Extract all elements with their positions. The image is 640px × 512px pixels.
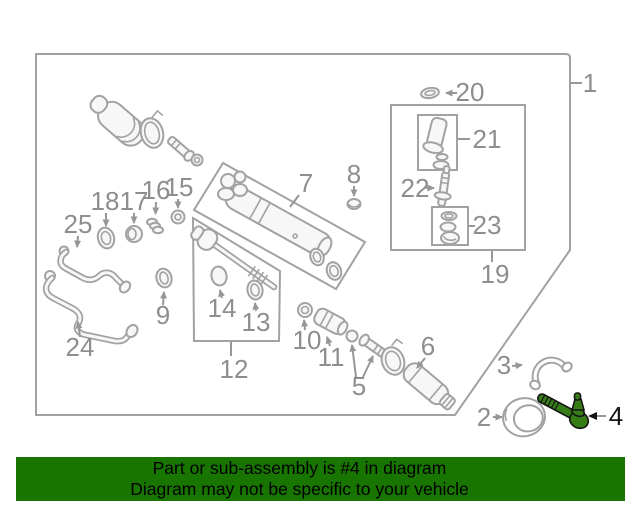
part-14	[210, 265, 229, 287]
callout-21[interactable]: 21	[458, 124, 501, 154]
callout-23-label[interactable]: 23	[473, 210, 502, 240]
callout-3[interactable]: 3	[497, 350, 574, 391]
part-8	[348, 199, 361, 209]
part-22-valve	[433, 165, 454, 207]
banner-line-1: Part or sub-assembly is #4 in diagram	[153, 458, 447, 479]
callout-20[interactable]: 20	[420, 77, 484, 107]
callout-25-label[interactable]: 25	[64, 209, 93, 239]
callout-12[interactable]: 12	[220, 342, 249, 384]
banner-line-2: Diagram may not be specific to your vehi…	[130, 479, 468, 500]
callout-11-label[interactable]: 11	[318, 342, 345, 372]
callout-23[interactable]: 23	[469, 210, 501, 240]
callout-16-arrow	[156, 202, 157, 214]
callout-2[interactable]: 2	[477, 394, 549, 440]
callout-9-label[interactable]: 9	[156, 300, 170, 330]
callout-9[interactable]: 9	[154, 267, 173, 330]
callout-4[interactable]: 4	[590, 401, 623, 431]
part-20-oring	[420, 87, 439, 100]
callout-25-arrow	[77, 236, 78, 247]
callout-21-label[interactable]: 21	[473, 124, 502, 154]
part-25-pipe	[60, 247, 133, 295]
callout-5-label[interactable]: 5	[352, 371, 366, 401]
callout-13[interactable]: 13	[242, 279, 271, 337]
part-16	[147, 219, 163, 233]
part-9	[154, 267, 173, 289]
group-23	[432, 207, 468, 245]
callout-3-label[interactable]: 3	[497, 350, 511, 380]
callout-5[interactable]: 5	[347, 331, 389, 402]
callout-14-label[interactable]: 14	[208, 293, 237, 323]
callout-7[interactable]: 7	[290, 168, 313, 207]
callout-22-label[interactable]: 22	[401, 173, 430, 203]
callout-13-label[interactable]: 13	[242, 307, 271, 337]
callout-19-label[interactable]: 19	[481, 259, 510, 289]
callout-6[interactable]: 6	[400, 331, 459, 414]
part-18	[96, 226, 117, 250]
part-15	[172, 211, 185, 224]
callout-17-label[interactable]: 17	[120, 186, 149, 216]
callout-8-label[interactable]: 8	[347, 159, 361, 189]
part-6	[400, 360, 459, 414]
callout-14[interactable]: 14	[208, 265, 237, 323]
parts-diagram: 1 15 16	[0, 0, 640, 512]
callout-22[interactable]: 22	[401, 165, 455, 207]
part-boot-clamp	[136, 110, 170, 151]
callout-6-label[interactable]: 6	[421, 331, 435, 361]
callout-20-label[interactable]: 20	[456, 77, 485, 107]
part-3-clamp	[529, 360, 574, 391]
group-21	[418, 115, 457, 170]
status-banner: Part or sub-assembly is #4 in diagram Di…	[16, 457, 625, 501]
part-washer	[192, 155, 203, 166]
callout-25[interactable]: 25	[64, 209, 93, 247]
part-boot	[84, 89, 149, 151]
part-10	[298, 303, 312, 317]
callout-1-label[interactable]: 1	[583, 68, 597, 98]
part-17	[126, 226, 142, 242]
callout-3-arrow	[512, 365, 522, 366]
callout-2-label[interactable]: 2	[477, 402, 491, 432]
callout-7-label[interactable]: 7	[299, 168, 313, 198]
callout-18-label[interactable]: 18	[91, 186, 120, 216]
callout-4-label[interactable]: 4	[609, 401, 623, 431]
callout-12-label[interactable]: 12	[220, 354, 249, 384]
callout-1[interactable]: 1	[570, 68, 597, 98]
callout-19[interactable]: 19	[481, 251, 510, 289]
callout-8[interactable]: 8	[347, 159, 361, 209]
part-5-ring	[347, 331, 358, 342]
callout-18[interactable]: 18	[91, 186, 120, 250]
callout-17[interactable]: 17	[120, 186, 149, 242]
